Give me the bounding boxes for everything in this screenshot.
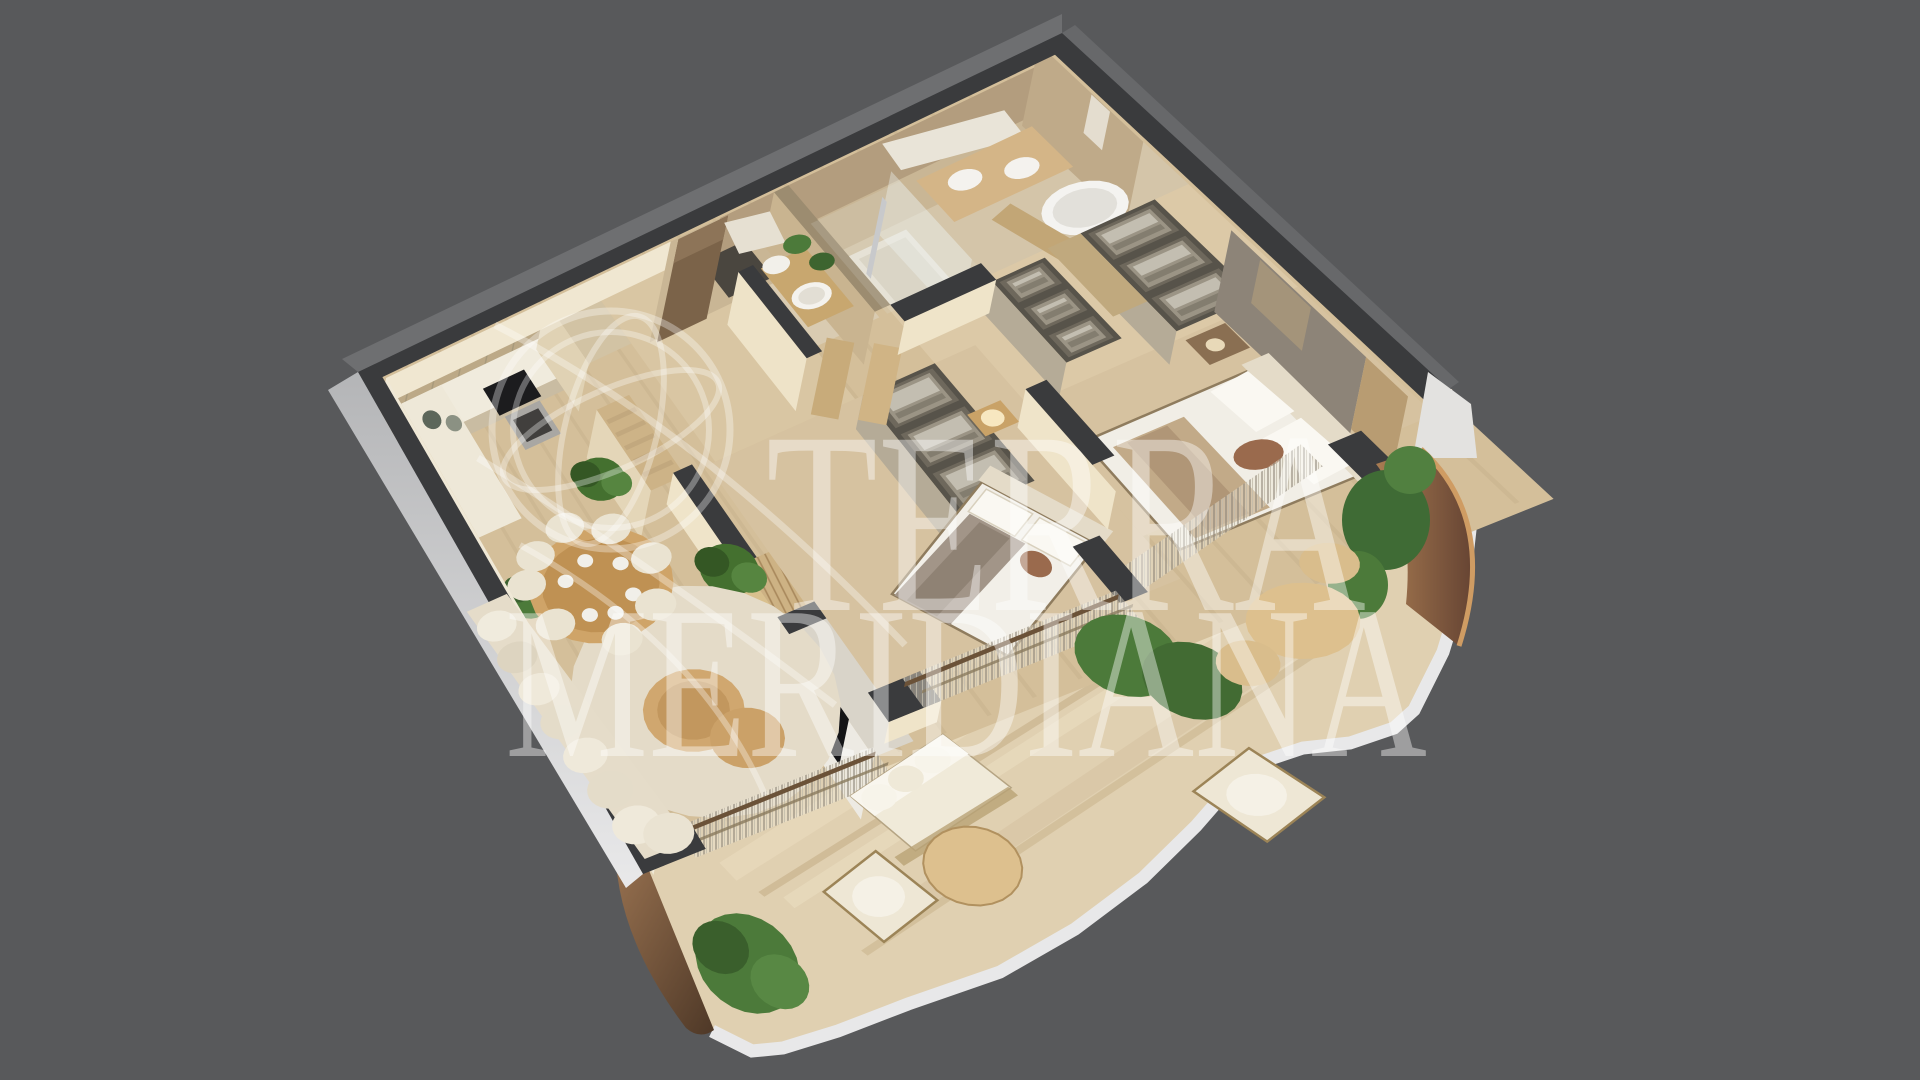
svg-text:MERIDIANA: MERIDIANA: [505, 563, 1427, 804]
